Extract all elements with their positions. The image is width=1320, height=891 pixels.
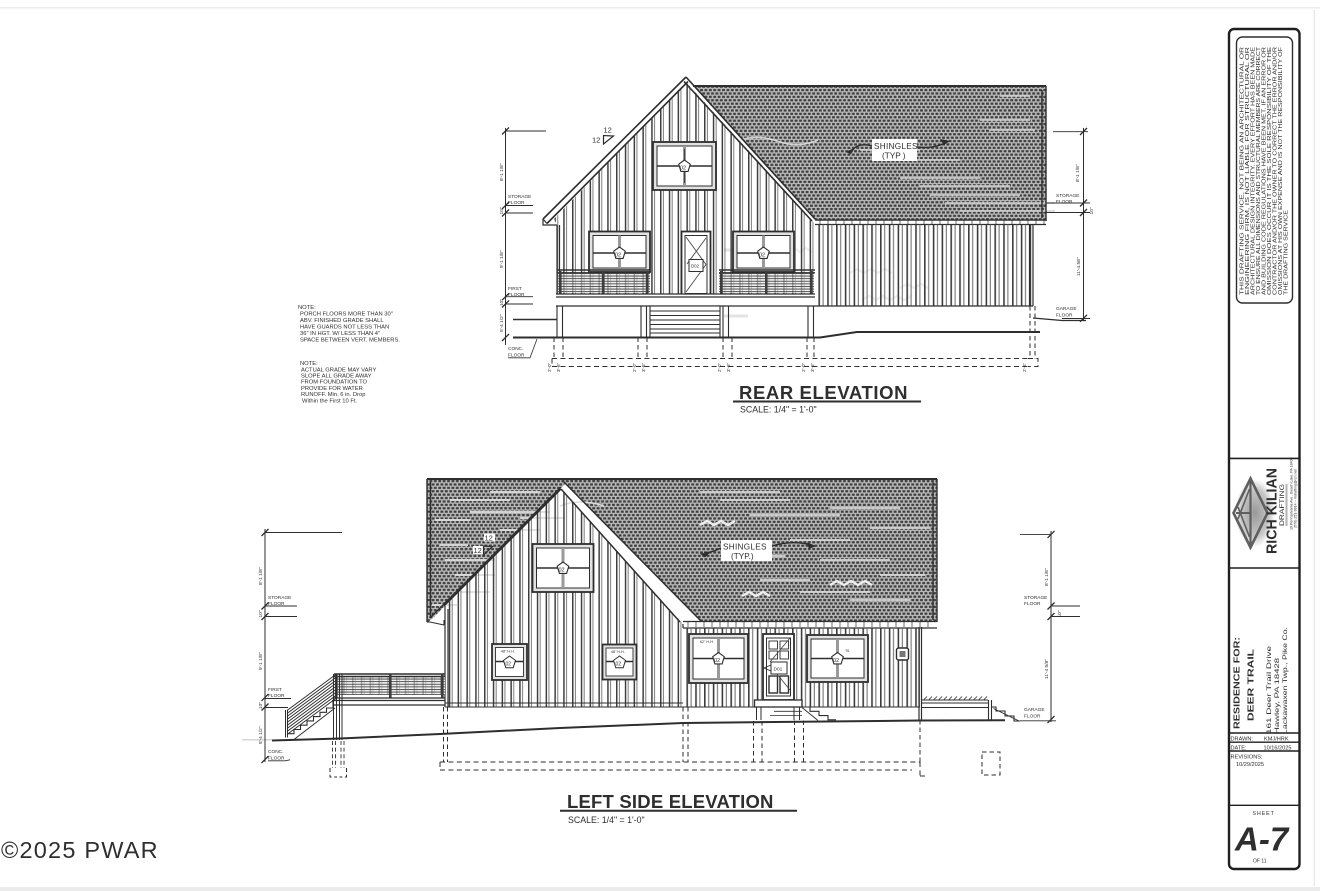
svg-text:10": 10" <box>258 702 264 709</box>
svg-text:8'-1 1/8": 8'-1 1/8" <box>258 567 264 585</box>
svg-text:2'-0": 2'-0" <box>632 362 637 372</box>
svg-text:FIRST: FIRST <box>508 286 522 292</box>
svg-text:KMJ/HRK: KMJ/HRK <box>1264 737 1289 743</box>
svg-text:02: 02 <box>615 253 621 259</box>
svg-text:CONC.: CONC. <box>508 346 523 352</box>
svg-text:NOTE:: NOTE: <box>300 361 318 367</box>
svg-text:STORAGE: STORAGE <box>268 595 291 601</box>
svg-text:PORCH FLOORS MORE THAN 30": PORCH FLOORS MORE THAN 30" <box>300 312 393 318</box>
svg-text:02: 02 <box>714 658 720 664</box>
svg-text:10/16/2025: 10/16/2025 <box>1264 746 1292 752</box>
svg-text:GARAGE: GARAGE <box>1056 306 1077 312</box>
svg-text:OF 11: OF 11 <box>1253 859 1267 865</box>
svg-text:CONC.: CONC. <box>268 749 283 755</box>
svg-text:FLOOR: FLOOR <box>508 200 525 206</box>
svg-text:SHINGLES: SHINGLES <box>874 142 918 151</box>
svg-text:LEFT SIDE ELEVATION: LEFT SIDE ELEVATION <box>567 791 774 812</box>
svg-text:(TYP ): (TYP ) <box>882 152 906 161</box>
svg-text:SLOPE ALL GRADE AWAY: SLOPE ALL GRADE AWAY <box>301 374 372 380</box>
svg-text:5'-4 1/2": 5'-4 1/2" <box>258 726 264 744</box>
svg-text:12: 12 <box>474 546 482 555</box>
svg-text:2'-0": 2'-0" <box>717 362 722 372</box>
svg-text:T6: T6 <box>845 649 849 653</box>
svg-text:FLOOR: FLOOR <box>1056 313 1073 319</box>
svg-text:9'-1 1/8": 9'-1 1/8" <box>258 652 264 670</box>
svg-text:Within the First 10 Ft.: Within the First 10 Ft. <box>302 398 357 404</box>
svg-text:FLOOR: FLOOR <box>268 693 285 699</box>
svg-text:36" IN HGT. W/ LESS THAN 4": 36" IN HGT. W/ LESS THAN 4" <box>300 331 380 337</box>
svg-text:A-7: A-7 <box>1234 821 1290 858</box>
svg-text:12: 12 <box>604 126 612 135</box>
svg-text:3'-6": 3'-6" <box>726 362 731 372</box>
svg-text:2'-0": 2'-0" <box>547 362 552 372</box>
svg-text:THE DRAFTING SERVICE: THE DRAFTING SERVICE <box>1284 209 1290 295</box>
svg-text:02: 02 <box>833 658 839 664</box>
svg-text:FLOOR: FLOOR <box>508 292 525 298</box>
svg-text:STORAGE: STORAGE <box>1056 193 1079 199</box>
svg-text:10": 10" <box>499 299 505 306</box>
svg-text:8'-1 1/8": 8'-1 1/8" <box>1075 164 1081 182</box>
svg-text:PROVIDE FOR WATER: PROVIDE FOR WATER <box>301 386 363 392</box>
svg-text:SCALE: 1/4" = 1'-0": SCALE: 1/4" = 1'-0" <box>740 405 817 415</box>
svg-text:10": 10" <box>1089 207 1095 214</box>
svg-text:D02: D02 <box>691 264 700 269</box>
svg-text:48" H.H.: 48" H.H. <box>501 650 515 654</box>
svg-text:FLOOR: FLOOR <box>1056 199 1073 205</box>
svg-text:FIRST: FIRST <box>268 687 282 693</box>
svg-text:ACTUAL GRADE MAY VARY: ACTUAL GRADE MAY VARY <box>301 367 377 373</box>
svg-text:SHEET: SHEET <box>1253 811 1275 817</box>
svg-text:10": 10" <box>1057 610 1063 617</box>
svg-text:STORAGE: STORAGE <box>1024 595 1047 601</box>
svg-text:FLOOR: FLOOR <box>1024 714 1041 720</box>
svg-text:(TYP.): (TYP.) <box>731 552 754 561</box>
svg-text:10": 10" <box>499 207 505 214</box>
svg-text:DEER TRAIL: DEER TRAIL <box>1247 649 1256 721</box>
svg-text:02: 02 <box>616 662 622 668</box>
svg-text:11'-4.58": 11'-4.58" <box>1076 257 1082 276</box>
svg-text:12: 12 <box>592 136 600 145</box>
svg-text:3'-6": 3'-6" <box>641 362 646 372</box>
svg-text:RICH KILIAN: RICH KILIAN <box>1264 468 1281 554</box>
svg-text:161 Deer Trail Drive: 161 Deer Trail Drive <box>1266 646 1273 734</box>
svg-text:D01: D01 <box>774 667 783 673</box>
svg-text:SPACE BETWEEN VERT. MEMBERS.: SPACE BETWEEN VERT. MEMBERS. <box>300 338 400 344</box>
svg-text:62" H.H.: 62" H.H. <box>700 640 714 644</box>
svg-text:DRAWN:: DRAWN: <box>1231 737 1254 743</box>
svg-text:DATE:: DATE: <box>1231 746 1248 752</box>
svg-text:GARAGE: GARAGE <box>1024 707 1045 713</box>
svg-text:8'-1 1/8": 8'-1 1/8" <box>1044 568 1050 586</box>
svg-text:11'-4 5/8": 11'-4 5/8" <box>1044 659 1050 679</box>
svg-text:02: 02 <box>759 253 765 259</box>
svg-text:FLOOR: FLOOR <box>1024 601 1041 607</box>
svg-text:(570) 251-9914 -- rkdrafting: (570) 251-9914 -- rkdrafting@rcn.net <box>1294 469 1298 528</box>
svg-text:REAR ELEVATION: REAR ELEVATION <box>739 382 908 403</box>
svg-text:10": 10" <box>258 610 264 617</box>
svg-text:©2025 PWAR: ©2025 PWAR <box>1 837 159 863</box>
svg-text:02: 02 <box>559 568 565 574</box>
svg-text:HAVE GUARDS NOT LESS THAN: HAVE GUARDS NOT LESS THAN <box>300 325 389 331</box>
svg-text:FROM FOUNDATION TO: FROM FOUNDATION TO <box>301 380 368 386</box>
svg-text:RUNOFF. Min. 6 in. Drop: RUNOFF. Min. 6 in. Drop <box>301 392 365 398</box>
svg-text:02: 02 <box>506 662 512 668</box>
svg-text:8'-1 1/8": 8'-1 1/8" <box>499 163 505 181</box>
svg-text:3'-6": 3'-6" <box>810 362 815 372</box>
svg-text:5'-4 1/2": 5'-4 1/2" <box>499 314 505 332</box>
svg-text:10/29/2025: 10/29/2025 <box>1236 762 1264 768</box>
svg-text:2'-6": 2'-6" <box>1022 362 1027 372</box>
svg-text:3'-6": 3'-6" <box>556 362 561 372</box>
svg-text:FLOOR: FLOOR <box>268 601 285 607</box>
svg-text:SHINGLES: SHINGLES <box>723 543 767 552</box>
svg-text:Lackawaxen Twp., Pike Co.: Lackawaxen Twp., Pike Co. <box>1282 627 1289 734</box>
svg-text:RESIDENCE FOR:: RESIDENCE FOR: <box>1232 637 1242 729</box>
svg-text:REVISIONS:: REVISIONS: <box>1231 755 1263 761</box>
svg-text:SCALE: 1/4" = 1'-0": SCALE: 1/4" = 1'-0" <box>568 815 645 825</box>
svg-text:Hawley, PA 18428: Hawley, PA 18428 <box>1274 658 1281 734</box>
svg-text:02: 02 <box>680 166 686 172</box>
svg-text:9'-1 1/8": 9'-1 1/8" <box>499 250 505 268</box>
svg-text:2'-0": 2'-0" <box>801 362 806 372</box>
svg-text:NOTE:: NOTE: <box>298 305 316 311</box>
svg-text:48" H.H.: 48" H.H. <box>611 650 625 654</box>
svg-text:DRAFTING: DRAFTING <box>1280 484 1286 526</box>
svg-text:ABV. FINISHED GRADE SHALL: ABV. FINISHED GRADE SHALL <box>300 318 384 324</box>
svg-text:STORAGE: STORAGE <box>508 194 531 200</box>
svg-text:12: 12 <box>485 534 493 543</box>
